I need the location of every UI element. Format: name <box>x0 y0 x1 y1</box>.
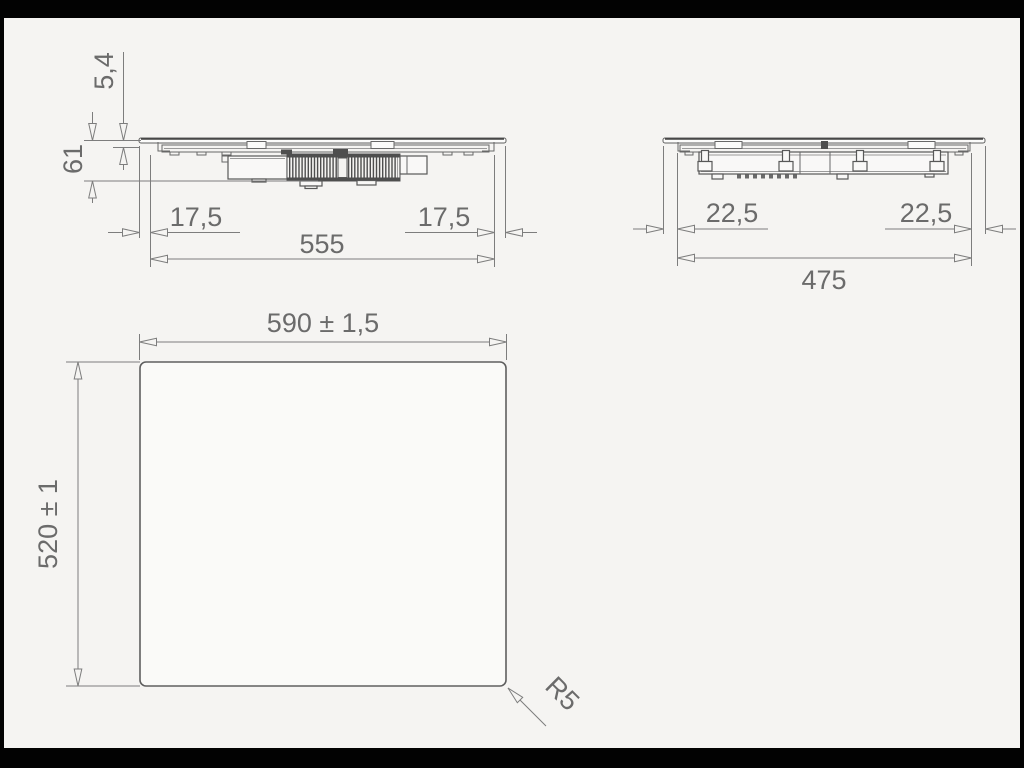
letterbox-top <box>0 0 1024 18</box>
dim-plate-thickness: 5,4 <box>89 52 119 90</box>
drawing-canvas: 5,4 61 17,5 17,5 555 <box>0 0 1024 768</box>
end-center-clip <box>821 141 828 149</box>
dim-height: 61 <box>58 144 88 174</box>
top-depth-dimension: 520 ± 1 <box>33 362 140 686</box>
side-rail-slot <box>371 142 394 149</box>
side-rail-slot <box>247 142 266 149</box>
top-view: 590 ± 1,5 520 ± 1 R5 <box>33 308 585 726</box>
dim-width: 555 <box>299 229 344 259</box>
end-view: 22,5 22,5 475 <box>633 138 1016 295</box>
letterbox-right <box>1020 0 1024 768</box>
side-view: 5,4 61 17,5 17,5 555 <box>58 52 537 267</box>
technical-drawing-page: 5,4 61 17,5 17,5 555 <box>0 0 1024 768</box>
dim-overhang-right: 22,5 <box>900 198 953 228</box>
side-heatsink <box>281 149 400 181</box>
dim-depth: 520 ± 1 <box>33 479 63 569</box>
letterbox-left <box>0 0 4 768</box>
dim-overhang-right: 17,5 <box>418 202 471 232</box>
corner-radius-callout: R5 <box>505 671 585 726</box>
top-width-dimension: 590 ± 1,5 <box>140 308 507 360</box>
end-rail-slot <box>715 142 742 149</box>
dim-width: 590 ± 1,5 <box>267 308 379 338</box>
dim-overhang-left: 17,5 <box>170 202 223 232</box>
dim-depth: 475 <box>801 265 846 295</box>
side-bracket <box>400 156 427 174</box>
side-electronics-box <box>228 156 287 179</box>
dim-overhang-left: 22,5 <box>706 198 759 228</box>
end-rail-slot <box>908 142 935 149</box>
dim-corner-radius: R5 <box>540 671 586 717</box>
letterbox-bottom <box>0 748 1024 768</box>
cutout-rectangle <box>140 362 506 686</box>
